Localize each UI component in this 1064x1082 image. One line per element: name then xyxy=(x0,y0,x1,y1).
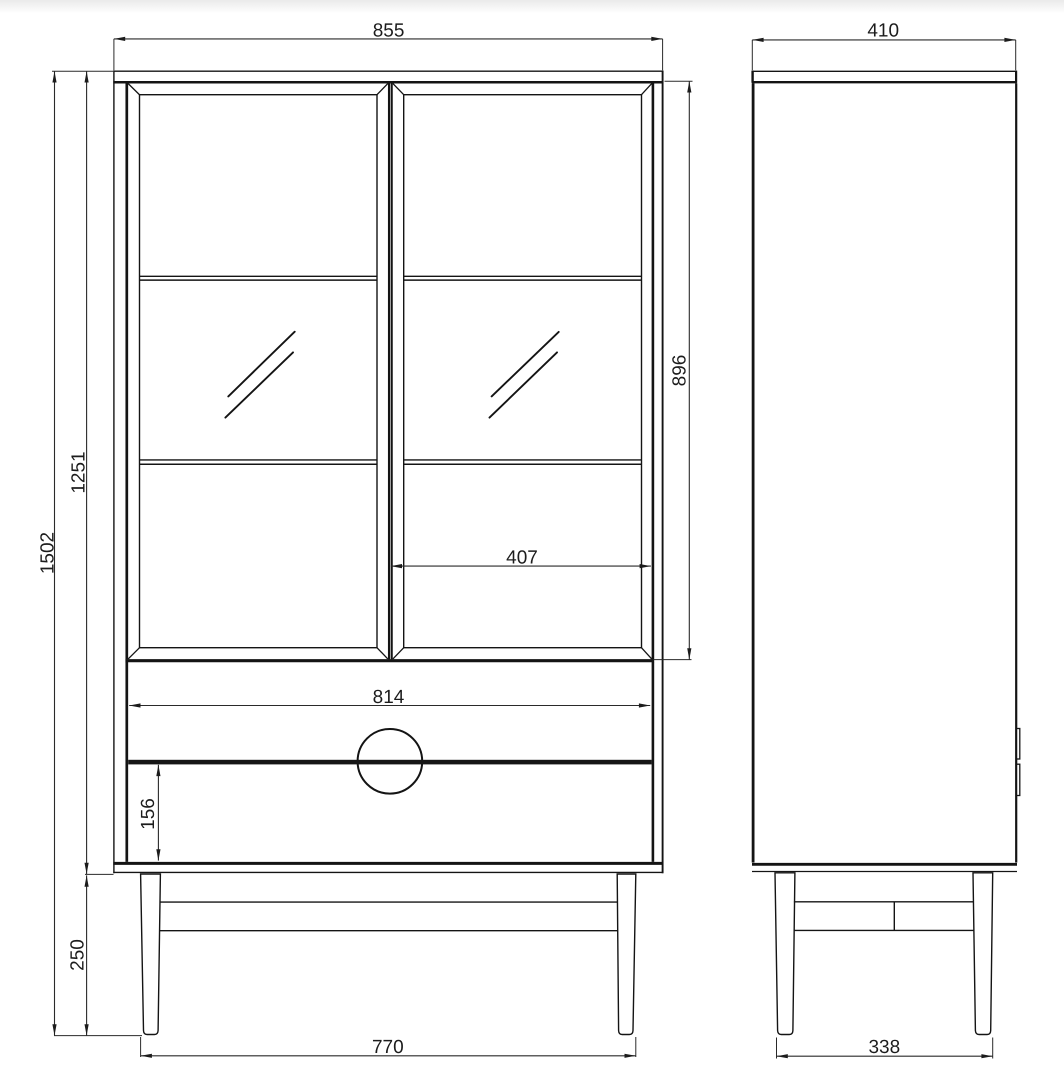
svg-text:410: 410 xyxy=(867,21,899,42)
svg-text:896: 896 xyxy=(670,355,691,387)
svg-text:770: 770 xyxy=(372,1037,404,1058)
svg-text:814: 814 xyxy=(373,687,405,708)
svg-text:855: 855 xyxy=(373,21,405,42)
svg-text:156: 156 xyxy=(138,798,159,830)
svg-text:338: 338 xyxy=(868,1037,900,1058)
svg-text:1251: 1251 xyxy=(69,451,90,493)
svg-text:1502: 1502 xyxy=(38,532,59,574)
svg-text:407: 407 xyxy=(506,547,538,568)
svg-text:250: 250 xyxy=(67,939,88,971)
